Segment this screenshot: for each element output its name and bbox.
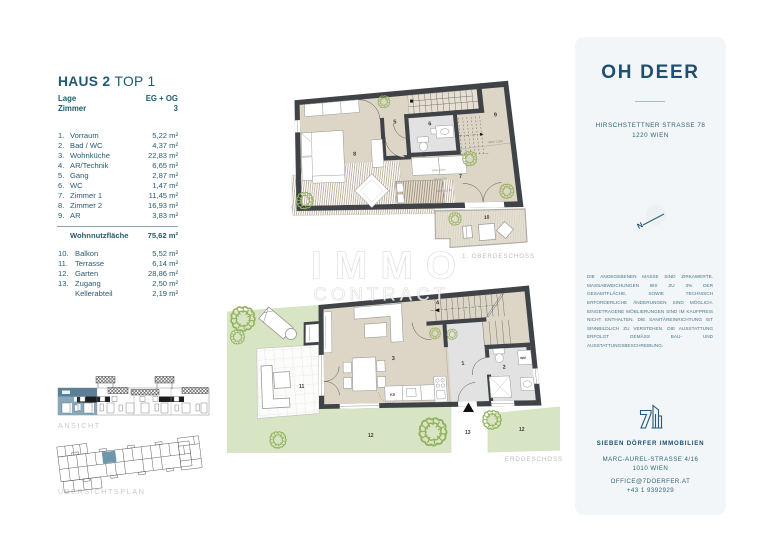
svg-text:1. OBERGESCHOSS: 1. OBERGESCHOSS xyxy=(462,253,535,260)
svg-text:WM: WM xyxy=(520,356,526,360)
svg-text:10: 10 xyxy=(484,215,490,221)
svg-text:8: 8 xyxy=(353,151,357,157)
svg-text:2: 2 xyxy=(502,364,506,370)
svg-text:ERDGESCHOSS: ERDGESCHOSS xyxy=(505,456,563,463)
svg-text:13: 13 xyxy=(465,430,471,436)
svg-text:9: 9 xyxy=(494,112,498,118)
svg-text:KS: KS xyxy=(390,393,396,397)
svg-text:1: 1 xyxy=(461,361,465,367)
svg-text:CONTRACT: CONTRACT xyxy=(314,284,450,305)
svg-text:7: 7 xyxy=(459,174,463,180)
svg-text:IMMO: IMMO xyxy=(311,245,469,288)
svg-text:5: 5 xyxy=(393,119,397,125)
svg-text:12: 12 xyxy=(368,433,374,439)
svg-text:6: 6 xyxy=(428,121,432,127)
svg-text:3: 3 xyxy=(392,356,396,362)
svg-text:11: 11 xyxy=(299,384,305,390)
svg-text:12: 12 xyxy=(519,427,525,433)
